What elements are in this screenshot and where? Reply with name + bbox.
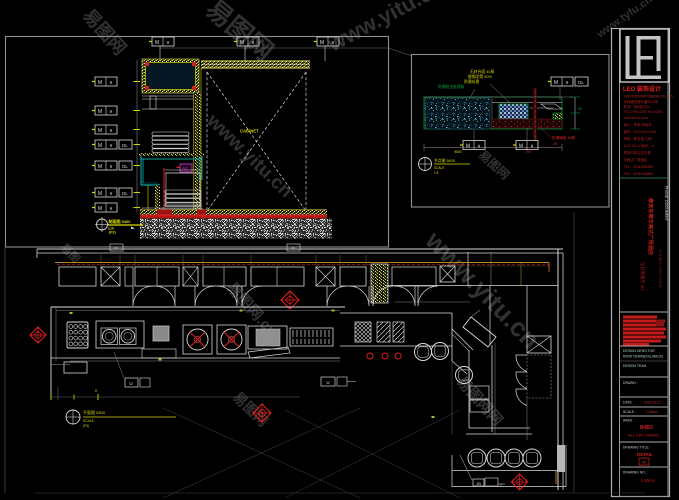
svg-text:DATE :: DATE : xyxy=(623,401,634,405)
svg-text:(P3): (P3) xyxy=(109,231,116,235)
svg-text:¥600: ¥600 xyxy=(454,150,461,154)
svg-text:石材台面 40厚: 石材台面 40厚 xyxy=(470,69,494,74)
svg-text:防潮防虫处理板: 防潮防虫处理板 xyxy=(438,84,465,89)
svg-text:DRAWING NO. :: DRAWING NO. : xyxy=(623,471,648,475)
svg-text:防潮堵板 18厚: 防潮堵板 18厚 xyxy=(552,135,575,140)
svg-text:联合广场A座2201: 联合广场A座2201 xyxy=(624,104,651,109)
svg-text:DL: DL xyxy=(578,80,584,85)
svg-text:M: M xyxy=(98,80,102,86)
svg-text:泰安市泰山区东尊: 泰安市泰山区东尊 xyxy=(624,150,652,155)
svg-text:B4B3: B4B3 xyxy=(640,425,653,431)
svg-text:2012.06.12: 2012.06.12 xyxy=(644,401,661,405)
svg-text:25: 25 xyxy=(553,142,557,146)
svg-text:SCALE: SCALE xyxy=(83,419,95,423)
svg-text:1:5: 1:5 xyxy=(434,171,439,175)
svg-text:DOUBLE TREE HOTEL: DOUBLE TREE HOTEL xyxy=(658,250,662,288)
svg-text:700: 700 xyxy=(525,150,531,154)
svg-text:LEO 装饰设计: LEO 装饰设计 xyxy=(623,85,661,93)
svg-text:ALL DAY DINING: ALL DAY DINING xyxy=(628,433,659,438)
svg-text:M: M xyxy=(98,143,102,149)
svg-text:设计：李明 张晓军: 设计：李明 张晓军 xyxy=(624,122,653,127)
svg-text:LEO INTERIOR DESIGN CO.,LTD: LEO INTERIOR DESIGN CO.,LTD xyxy=(624,95,674,99)
svg-text:M: M xyxy=(98,191,102,197)
svg-text:审核：陈志强 王明: 审核：陈志强 王明 xyxy=(624,136,653,141)
svg-text:M: M xyxy=(240,40,244,46)
svg-text:平面图 5400: 平面图 5400 xyxy=(83,409,106,415)
svg-text:DL: DL xyxy=(122,191,128,196)
svg-text:(P3): (P3) xyxy=(83,424,89,428)
svg-text:L-05(A): L-05(A) xyxy=(641,478,656,483)
svg-text:M: M xyxy=(320,40,324,46)
svg-text:U: U xyxy=(129,381,132,386)
svg-text:M: M xyxy=(114,246,117,251)
svg-text:DRAWING TITLE :: DRAWING TITLE : xyxy=(623,446,651,450)
svg-text:M: M xyxy=(554,80,558,86)
svg-text:1B: 1B xyxy=(476,481,481,486)
svg-text:TEL:0755-8293 FAX:8293: TEL:0755-8293 FAX:8293 xyxy=(624,110,663,114)
svg-text:全日制餐厅 B1: 全日制餐厅 B1 xyxy=(639,262,646,291)
svg-text:编号：LEO-2012-068: 编号：LEO-2012-068 xyxy=(624,129,657,134)
svg-text:05: 05 xyxy=(642,460,647,465)
svg-text:陂钢龙骨 50%: 陂钢龙骨 50% xyxy=(468,74,492,79)
svg-text:AREA :: AREA : xyxy=(623,419,634,423)
svg-text:U: U xyxy=(326,380,329,385)
svg-text:¥: ¥ xyxy=(95,389,97,393)
svg-text:M: M xyxy=(466,143,470,149)
svg-text:M: M xyxy=(291,246,294,251)
svg-text:2012.06.12 版本：A: 2012.06.12 版本：A xyxy=(624,143,655,148)
svg-text:DL: DL xyxy=(122,164,128,169)
svg-text:M: M xyxy=(519,143,523,149)
svg-text:剤面图 5400: 剤面图 5400 xyxy=(108,218,132,224)
svg-text:SCALE: SCALE xyxy=(434,166,444,170)
svg-text:TEL：0538-836888: TEL：0538-836888 xyxy=(624,165,654,169)
svg-text:CABINET: CABINET xyxy=(240,129,259,134)
svg-text:www.leo-sz.com: www.leo-sz.com xyxy=(624,116,649,120)
svg-text:KKND TEAMS(KILLWACK): KKND TEAMS(KILLWACK) xyxy=(623,355,663,359)
svg-text:华美达广场酒店: 华美达广场酒店 xyxy=(624,157,648,162)
svg-text:DL: DL xyxy=(122,143,128,148)
svg-text:PHASE DOCUMENT: PHASE DOCUMENT xyxy=(664,186,668,222)
svg-text:M: M xyxy=(98,109,102,115)
svg-text:≈: ≈ xyxy=(500,483,502,487)
svg-text:M: M xyxy=(98,164,102,170)
svg-text:SCALE :: SCALE : xyxy=(623,410,636,414)
svg-text:M: M xyxy=(98,206,102,212)
svg-text:DESIGN DIRECTOR: DESIGN DIRECTOR xyxy=(623,349,655,353)
svg-text:DETAIL: DETAIL xyxy=(637,452,653,457)
svg-text:DRAWN :: DRAWN : xyxy=(623,381,638,385)
svg-text:深圳福田滨河道5022号: 深圳福田滨河道5022号 xyxy=(624,99,659,104)
svg-text:1:50mm: 1:50mm xyxy=(646,410,658,414)
svg-text:M: M xyxy=(155,40,159,46)
svg-text:防潮处理: 防潮处理 xyxy=(464,79,479,84)
svg-text:节点图 5400: 节点图 5400 xyxy=(434,158,455,163)
svg-text:45: 45 xyxy=(578,107,582,111)
svg-text:FAX：0538-836889: FAX：0538-836889 xyxy=(624,172,654,176)
svg-text:M: M xyxy=(98,128,102,134)
svg-text:DESIGN TEAM: DESIGN TEAM xyxy=(623,364,646,368)
svg-text:泰安东尊华美达广场酒店: 泰安东尊华美达广场酒店 xyxy=(647,197,655,255)
